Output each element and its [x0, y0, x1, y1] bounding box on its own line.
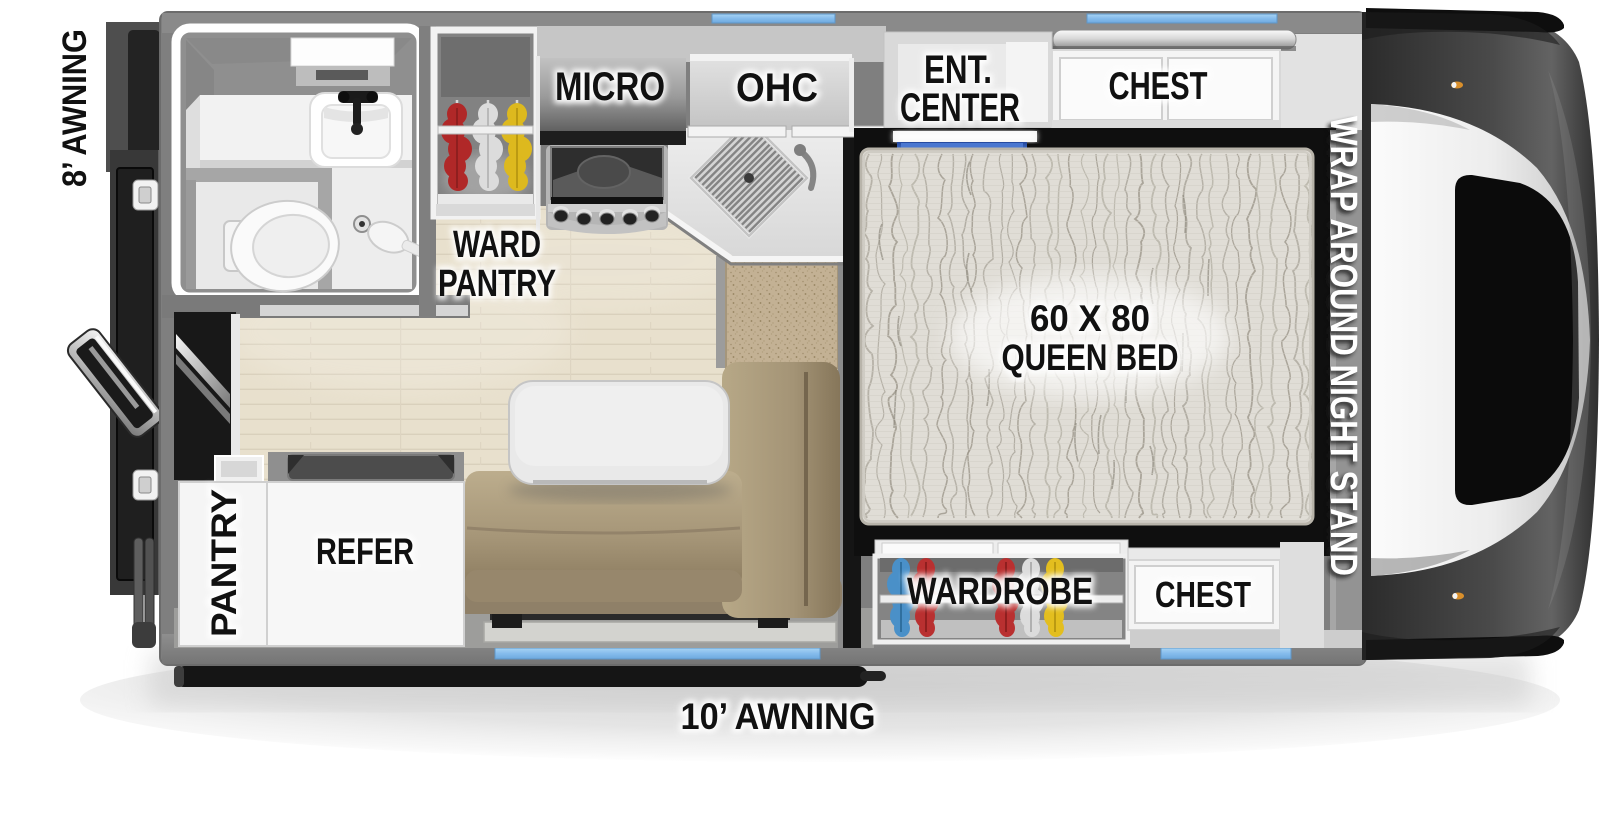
svg-text:MICRO: MICRO: [555, 65, 665, 109]
svg-text:OHC: OHC: [736, 66, 818, 110]
svg-text:CENTER: CENTER: [900, 86, 1020, 130]
svg-text:WRAP AROUND NIGHT STAND: WRAP AROUND NIGHT STAND: [1322, 116, 1364, 576]
svg-text:10’ AWNING: 10’ AWNING: [681, 696, 876, 737]
svg-text:8’ AWNING: 8’ AWNING: [56, 29, 94, 187]
svg-text:WARDROBE: WARDROBE: [907, 571, 1093, 613]
svg-text:WARD: WARD: [453, 224, 541, 266]
svg-text:PANTRY: PANTRY: [205, 489, 244, 637]
svg-text:PANTRY: PANTRY: [438, 263, 556, 305]
svg-text:REFER: REFER: [316, 531, 414, 572]
svg-text:CHEST: CHEST: [1155, 574, 1251, 615]
svg-text:CHEST: CHEST: [1109, 65, 1208, 108]
svg-text:QUEEN BED: QUEEN BED: [1002, 337, 1179, 378]
svg-text:60 X 80: 60 X 80: [1030, 298, 1150, 339]
